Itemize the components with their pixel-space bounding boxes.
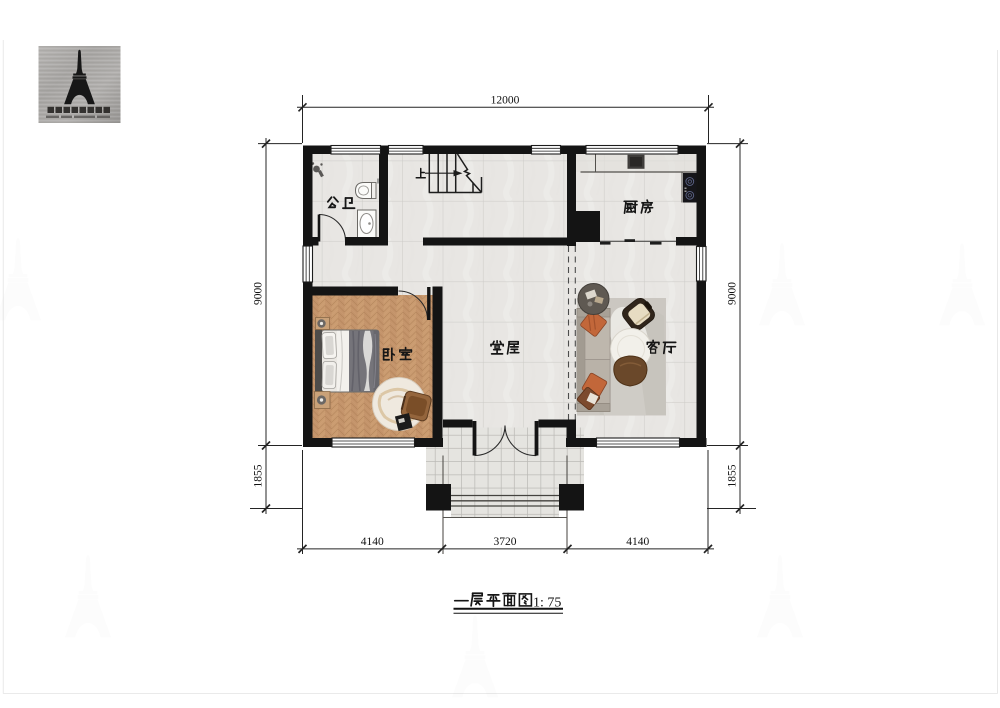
svg-text:12000: 12000: [491, 95, 520, 107]
svg-text:9000: 9000: [253, 282, 265, 305]
svg-text:3720: 3720: [494, 536, 517, 548]
svg-text:9000: 9000: [727, 282, 739, 305]
svg-text:1855: 1855: [253, 464, 265, 487]
svg-text:4140: 4140: [361, 536, 384, 548]
svg-text:1855: 1855: [727, 464, 739, 487]
svg-text:4140: 4140: [626, 536, 649, 548]
